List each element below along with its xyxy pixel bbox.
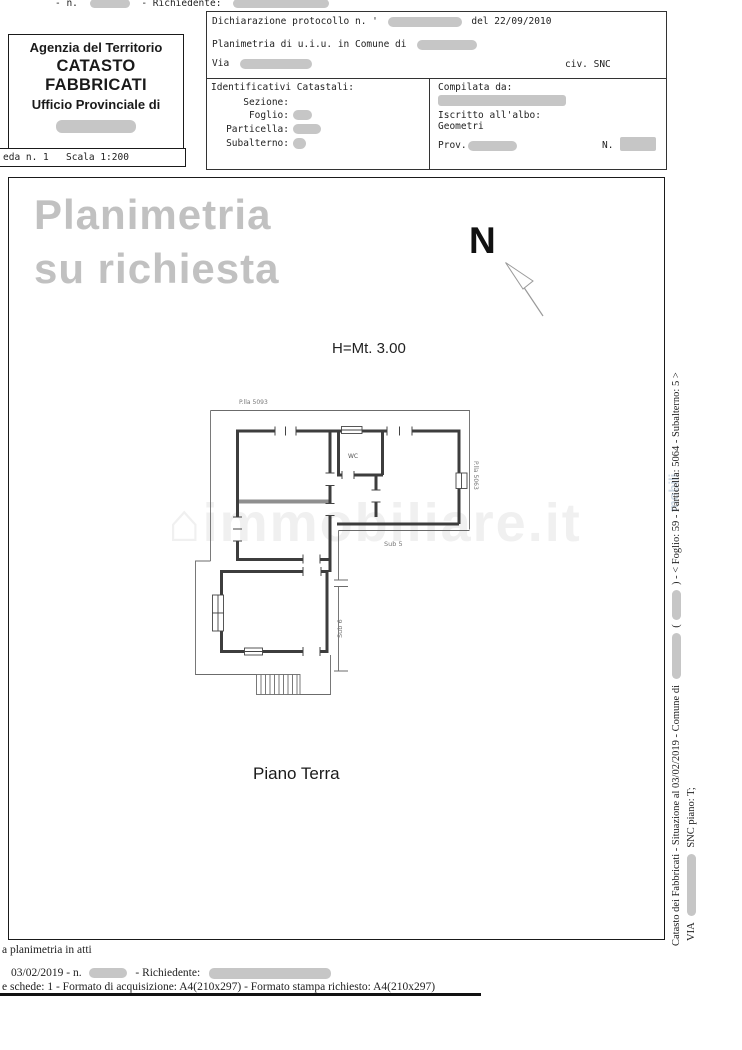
footer-date-label: 03/02/2019 - n. (11, 967, 82, 979)
footer-line1: a planimetria in atti (2, 944, 92, 956)
sidebar-reference-line: Catasto dei Fabbricati - Situazione al 0… (671, 284, 682, 946)
staircase (257, 675, 301, 695)
north-label: N (469, 220, 496, 261)
parcel-right-label: P.lla 5063 (472, 461, 479, 490)
floor-plan-svg: N (0, 0, 742, 1050)
footer-rule (0, 993, 481, 996)
footer-line3: e schede: 1 - Formato di acquisizione: A… (2, 981, 435, 993)
sidebar-address-line: VIA SNC piano: T; (686, 761, 697, 941)
sub-main-label: Sub 5 (384, 540, 403, 548)
redacted-sidebar-code (672, 590, 681, 620)
sub-side-label: Sub 6 (336, 619, 344, 638)
redacted-sidebar-street (687, 854, 696, 916)
sidebar-via-label: VIA (686, 923, 697, 941)
sidebar-ref-part2: ( (671, 624, 682, 628)
redacted-footer-requester (209, 968, 331, 979)
redacted-sidebar-comune (672, 633, 681, 679)
north-arrow: N (469, 220, 543, 316)
cadastral-document-page: { "topline": { "n_label": "- n.", "reque… (0, 0, 742, 1050)
sidebar-ref-part3: ) - < Foglio: 59 - Particella: 5064 - Su… (671, 372, 682, 585)
footer-requester-label: - Richiedente: (135, 967, 200, 979)
sidebar-ref-part1: Catasto dei Fabbricati - Situazione al 0… (671, 685, 682, 946)
redacted-footer-number (89, 968, 127, 978)
north-arrow-head (506, 263, 534, 290)
parcel-top-label: P.lla 5093 (239, 399, 268, 406)
wc-label: WC (348, 453, 358, 460)
sidebar-snc-label: SNC piano: T; (686, 787, 697, 847)
footer-line2: 03/02/2019 - n. - Richiedente: (11, 967, 337, 979)
